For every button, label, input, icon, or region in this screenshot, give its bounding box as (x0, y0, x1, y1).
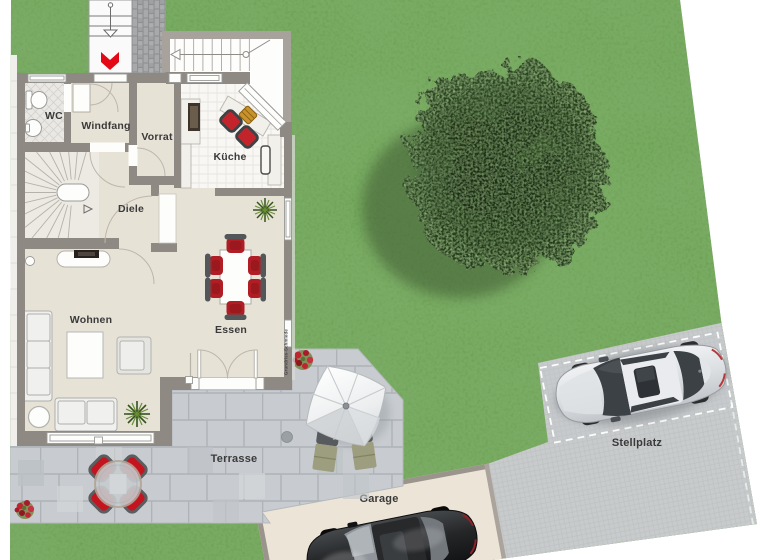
svg-text:Stellplatz: Stellplatz (612, 437, 663, 449)
svg-text:Wohnen: Wohnen (70, 314, 112, 326)
svg-text:Windfang: Windfang (81, 120, 130, 132)
svg-text:Küche: Küche (213, 151, 246, 163)
svg-text:WC: WC (45, 110, 63, 122)
svg-text:Terrasse: Terrasse (211, 453, 258, 465)
svg-text:Grundriss-Schmiede: Grundriss-Schmiede (284, 329, 289, 375)
svg-text:Vorrat: Vorrat (141, 131, 173, 143)
svg-text:Diele: Diele (118, 203, 144, 215)
svg-text:Essen: Essen (215, 324, 247, 336)
